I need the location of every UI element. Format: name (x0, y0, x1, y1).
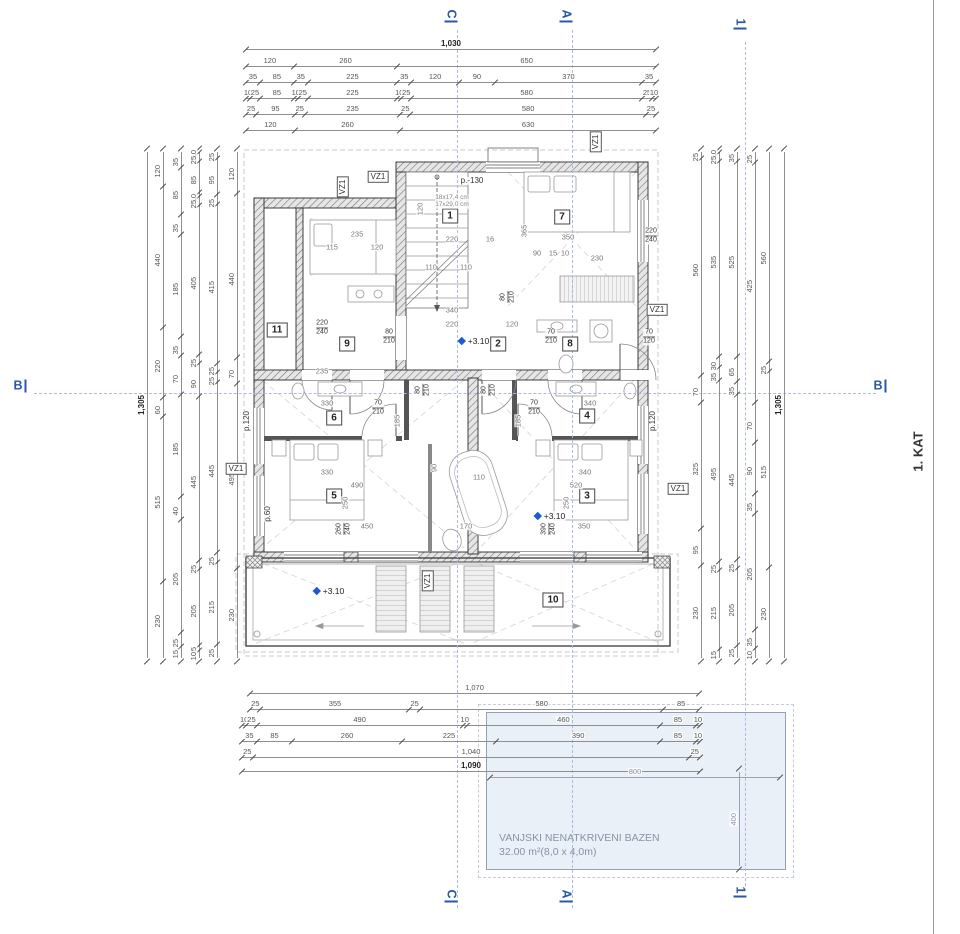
dim-segment: 260 (294, 55, 398, 66)
door-height: 240 (645, 237, 657, 244)
dim-segment: 25 (708, 565, 719, 574)
pool-label-line2: 32.00 m²(8,0 x 4,0m) (499, 846, 596, 858)
dim-label: 25 (298, 89, 308, 97)
dim-label: 85 (172, 190, 180, 200)
dim-segment: 445 (188, 400, 199, 564)
dim-segment: 95 (206, 162, 217, 198)
door-size-label: 80210 (480, 384, 497, 396)
room-number: 3 (579, 489, 595, 504)
dim-segment: 185 (170, 398, 181, 500)
dim-segment: 25 (758, 365, 769, 375)
dim-segment: 35 (242, 730, 257, 741)
dimension-chain: 358535225351209037035 (246, 71, 656, 83)
dim-label: 215 (710, 606, 718, 621)
interior-dim-label: 340 (446, 306, 459, 314)
dim-segment: 205 (726, 572, 737, 648)
dim-label: 10 (693, 732, 703, 740)
dim-segment: 1,030 (246, 38, 656, 49)
dim-segment: 440 (152, 190, 163, 330)
dim-segment: 25 (188, 156, 199, 165)
dim-label: 30 (710, 361, 718, 371)
interior-dim-label: 350 (578, 522, 591, 530)
lounge-chairs (376, 566, 494, 632)
interior-dim-label: 90 (533, 249, 541, 257)
dim-label: 25 (250, 89, 260, 97)
door-height: 210 (509, 291, 516, 303)
dim-label: 25 (250, 700, 260, 708)
stair-spec-label: 17x29,0 cm (435, 202, 469, 209)
dim-label: 10 (649, 89, 659, 97)
dim-label: 25 (190, 564, 198, 574)
interior-dim-label: 250 (341, 497, 349, 510)
door-height: 240 (550, 523, 557, 535)
interior-dim-label: 15 (549, 249, 557, 257)
section-marker: C (445, 889, 458, 902)
dim-segment: 230 (690, 569, 701, 658)
floor-divider-line (933, 0, 934, 934)
dim-segment: 515 (152, 420, 163, 584)
dim-segment: 15 (708, 653, 719, 658)
washer-room8 (590, 320, 612, 342)
dim-segment: 560 (690, 162, 701, 379)
section-marker-label: A (560, 889, 573, 898)
dimension-chain: 120260650 (246, 55, 656, 67)
dim-label: 85 (272, 73, 282, 81)
door-size-label: 390240 (540, 523, 557, 535)
dim-label: 95 (692, 545, 700, 555)
dim-segment: 120 (152, 152, 163, 190)
door-size-label: 220240 (645, 227, 657, 244)
dim-label: 440 (154, 253, 162, 268)
interior-dim-label: 16 (486, 235, 494, 243)
dim-label: 220 (154, 359, 162, 374)
room-number: 4 (579, 409, 595, 424)
dimension-chain: 2595252352558025 (246, 103, 656, 115)
toilet-room8 (559, 355, 573, 373)
door-size-label: 80210 (499, 291, 516, 303)
dim-label: 25 (401, 89, 411, 97)
dim-segment: 230 (152, 585, 163, 658)
dim-segment: 370 (495, 71, 642, 82)
dim-segment: 205 (744, 517, 755, 633)
dim-label: 65 (728, 367, 736, 377)
interior-dim-label: 120 (506, 320, 519, 328)
dimension-chain: 102553530354952521515 (708, 152, 720, 658)
dim-segment: 580 (410, 103, 645, 114)
dim-label: 1,305 (138, 394, 146, 416)
door-height: 210 (528, 409, 540, 416)
dim-segment: 25 (726, 649, 737, 658)
dim-segment: 35 (294, 71, 308, 82)
dim-label: 535 (710, 255, 718, 270)
dim-label: 425 (746, 279, 754, 294)
dim-label: 370 (561, 73, 576, 81)
dim-label: 35 (746, 637, 754, 647)
dim-segment: 325 (690, 406, 701, 532)
dim-segment: 560 (758, 152, 769, 365)
door-width: 80 (480, 384, 489, 396)
dim-segment: 10 (696, 714, 700, 725)
dim-label: 650 (519, 57, 534, 65)
dimension-chain: 35852602253908510 (242, 730, 700, 742)
dim-segment: 70 (170, 359, 181, 398)
dim-segment: 580 (411, 87, 642, 98)
dimension-chain: 12044070495230 (226, 152, 238, 658)
dim-label: 260 (340, 121, 355, 129)
dim-segment: 25 (400, 103, 410, 114)
elevation-value: +3.10 (544, 511, 566, 521)
dim-segment: 25 (744, 152, 755, 166)
door-height: 210 (372, 409, 384, 416)
dim-label: 35 (172, 345, 180, 355)
dim-label: 460 (556, 716, 571, 724)
dim-segment: 85 (257, 730, 293, 741)
dim-label: 580 (521, 105, 536, 113)
ventilation-label: VZ1 (422, 571, 434, 592)
interior-dim-label: 230 (591, 254, 604, 262)
room-number: 11 (267, 323, 288, 338)
dim-segment: 25 (689, 746, 700, 757)
door-width: 390 (540, 523, 549, 535)
dim-label: 25 (190, 358, 198, 368)
dim-segment: 85 (260, 71, 294, 82)
dim-segment: 1,040 (253, 746, 690, 757)
dim-label: 35 (244, 732, 254, 740)
dim-segment: 215 (708, 574, 719, 653)
door-width: 80 (383, 328, 395, 337)
dim-label: 60 (154, 405, 162, 415)
interior-dim-label: 340 (579, 468, 592, 476)
interior-dim-label: 185 (393, 415, 401, 428)
section-marker: 1 (734, 887, 747, 898)
dim-segment: 1,070 (250, 682, 699, 693)
dim-segment: 25 (401, 87, 411, 98)
elevation-value: +3.10 (468, 336, 490, 346)
section-marker: B (873, 380, 886, 393)
interior-dim-label: 330 (321, 468, 334, 476)
dim-segment: 405 (188, 209, 199, 358)
dim-label: 70 (228, 369, 236, 379)
section-marker-label: B (13, 380, 22, 393)
parapet-label: p.120 (243, 411, 251, 431)
dim-segment: 25 (170, 636, 181, 650)
dim-segment: 15 (170, 650, 181, 658)
dimension-chain: 3552565354452520525 (726, 152, 738, 658)
dim-label: 260 (338, 57, 353, 65)
dim-label: 90 (746, 466, 754, 476)
interior-dim-label: 170 (460, 522, 473, 530)
interior-dim-label: 90 (430, 464, 438, 472)
dim-segment: 85 (660, 730, 696, 741)
door-size-label: 70210 (372, 399, 384, 416)
door-width: 70 (545, 328, 557, 337)
dim-segment: 120 (246, 55, 294, 66)
dim-segment: 445 (726, 398, 737, 564)
room-number: 9 (339, 337, 355, 352)
interior-dim-label: 120 (371, 243, 384, 251)
door-width: 220 (645, 227, 657, 236)
dim-label: 95 (208, 175, 216, 185)
dim-segment: 90 (744, 446, 755, 497)
dim-segment: 630 (400, 119, 656, 130)
dimension-chain: 400 (728, 772, 740, 866)
dim-label: 1,030 (440, 40, 462, 48)
ventilation-label: VZ1 (337, 177, 349, 198)
door-width: 220 (316, 319, 328, 328)
dim-label: 580 (519, 89, 534, 97)
dimension-chain: 1,305 (773, 152, 785, 658)
dim-label: 25 (760, 365, 768, 375)
dim-label: 40 (172, 506, 180, 516)
dim-segment: 25 (206, 152, 217, 162)
dim-segment: 355 (260, 698, 409, 709)
parapet-label: p.120 (649, 411, 657, 431)
dim-segment: 25 (188, 564, 199, 573)
dim-label: 560 (760, 251, 768, 266)
dim-label: 10 (460, 716, 470, 724)
dim-label: 560 (692, 263, 700, 278)
dim-label: 35 (746, 502, 754, 512)
dim-label: 10 (693, 716, 703, 724)
dim-segment: 120 (246, 119, 295, 130)
dim-label: 25 (208, 198, 216, 208)
dim-segment: 440 (226, 197, 237, 361)
dim-segment: 230 (758, 571, 769, 659)
dim-segment: 10 (463, 714, 467, 725)
dim-label: 10 (746, 650, 754, 660)
parapet-label: p.-130 (461, 177, 484, 185)
dim-segment: 95 (690, 532, 701, 569)
elevation-marker: +3.10 (314, 586, 345, 596)
dim-label: 445 (208, 464, 216, 479)
dim-segment: 10 (652, 87, 656, 98)
dimension-chain: 251,04025 (242, 746, 700, 758)
dim-label: 120 (263, 57, 278, 65)
dim-label: 415 (208, 280, 216, 295)
dim-segment: 25 (242, 746, 253, 757)
dim-label: 25 (208, 152, 216, 162)
dim-segment: 35 (397, 71, 411, 82)
dim-segment: 25 (726, 563, 737, 572)
dimension-chain: 254257090352053510 (744, 152, 756, 658)
elevation-diamond-icon (457, 337, 465, 345)
dim-segment: 25 (206, 556, 217, 566)
interior-dim-label: 220 (446, 235, 459, 243)
door-height: 210 (424, 384, 431, 396)
dim-label: 25 (190, 155, 198, 165)
dim-segment: 70 (744, 406, 755, 446)
section-line (457, 30, 458, 908)
interior-dim-label: 220 (446, 320, 459, 328)
dimension-chain: 12044022060515230 (152, 152, 164, 658)
dim-label: 95 (270, 105, 280, 113)
dim-segment: 85 (663, 698, 699, 709)
dim-segment: 25 (690, 152, 701, 162)
dim-label: 35 (644, 73, 654, 81)
dim-label: 10 (190, 651, 198, 661)
dim-label: 120 (428, 73, 443, 81)
dim-label: 85 (676, 700, 686, 708)
dim-label: 580 (534, 700, 549, 708)
door-size-label: 70210 (528, 399, 540, 416)
dim-label: 35 (172, 223, 180, 233)
section-marker-label: C (445, 889, 458, 898)
dimension-chain: 56025515230 (758, 152, 770, 658)
elevation-marker: +3.10 (459, 336, 490, 346)
dim-segment: 25 (295, 103, 305, 114)
dim-label: 15 (710, 650, 718, 660)
dimension-chain: 1,305 (136, 152, 148, 658)
dim-segment: 35 (708, 371, 719, 384)
door-width: 70 (372, 399, 384, 408)
interior-dim-label: 10 (561, 249, 569, 257)
door-size-label: 70120 (643, 328, 655, 345)
dim-label: 230 (760, 607, 768, 622)
door-size-label: 260240 (335, 523, 352, 535)
dim-label: 1,040 (461, 748, 482, 756)
dim-label: 800 (628, 768, 643, 776)
interior-dim-label: 330 (321, 399, 334, 407)
dim-segment: 25 (188, 200, 199, 209)
door-size-label: 70210 (545, 328, 557, 345)
elevation-value: +3.10 (323, 586, 345, 596)
dim-label: 25 (710, 155, 718, 165)
door-height: 210 (490, 384, 497, 396)
dim-segment: 225 (308, 87, 398, 98)
dim-segment: 85 (170, 171, 181, 218)
dim-segment: 25 (246, 714, 257, 725)
interior-dim-label: 110 (460, 263, 472, 271)
dim-segment: 120 (411, 71, 459, 82)
dim-label: 25 (692, 152, 700, 162)
dim-segment: 25 (206, 376, 217, 386)
dim-label: 490 (352, 716, 367, 724)
section-marker-label: 1 (734, 887, 747, 894)
interior-dim-label: 340 (584, 399, 597, 407)
dim-label: 525 (728, 255, 736, 270)
pool-label-line1: VANJSKI NENATKRIVENI BAZEN (499, 832, 660, 844)
interior-dim-label: 115 (326, 243, 338, 251)
dim-segment: 515 (758, 375, 769, 571)
elevation-diamond-icon (312, 587, 320, 595)
dim-segment: 1,305 (773, 152, 784, 658)
dim-label: 25 (246, 105, 256, 113)
dim-label: 25 (646, 105, 656, 113)
dim-segment: 10 (188, 654, 199, 658)
dim-label: 445 (190, 475, 198, 490)
interior-dim-label: 350 (562, 233, 575, 241)
dim-label: 25 (710, 564, 718, 574)
dim-label: 630 (521, 121, 536, 129)
room-number: 7 (554, 210, 570, 225)
dim-segment: 10 (696, 730, 700, 741)
ventilation-label: VZ1 (668, 483, 689, 495)
dim-label: 85 (269, 732, 279, 740)
section-marker: C (445, 9, 458, 22)
toilet-room4 (624, 383, 636, 399)
dim-label: 35 (728, 386, 736, 396)
bathtub (444, 445, 512, 540)
dim-segment: 490 (257, 714, 463, 725)
dim-label: 25 (190, 199, 198, 209)
dim-label: 445 (728, 473, 736, 488)
dim-segment: 260 (292, 730, 401, 741)
dim-label: 25 (208, 648, 216, 658)
dim-segment: 220 (152, 331, 163, 401)
dim-label: 185 (172, 442, 180, 457)
dimension-chain: 1,070 (250, 682, 699, 694)
dim-segment: 35 (726, 152, 737, 165)
dim-label: 25 (400, 105, 410, 113)
parapet-label: p.60 (264, 506, 272, 522)
dim-label: 325 (692, 462, 700, 477)
dim-label: 1,070 (464, 684, 485, 692)
dim-segment: 235 (305, 103, 400, 114)
room-number: 6 (326, 411, 342, 426)
dim-segment: 215 (206, 566, 217, 648)
dim-label: 495 (710, 467, 718, 482)
interior-dim-label: 120 (416, 203, 424, 216)
section-marker: A (560, 889, 573, 902)
dim-label: 120 (154, 164, 162, 179)
dim-label: 390 (571, 732, 586, 740)
section-marker: A (560, 9, 573, 22)
dim-label: 25 (246, 716, 256, 724)
dim-label: 90 (190, 379, 198, 389)
dim-label: 225 (345, 89, 360, 97)
section-marker: 1 (734, 19, 747, 30)
dim-label: 235 (345, 105, 360, 113)
dim-label: 205 (728, 603, 736, 618)
door-height: 120 (643, 338, 655, 345)
dim-segment: 30 (708, 360, 719, 371)
dim-label: 15 (172, 649, 180, 659)
dim-segment: 10 (744, 652, 755, 658)
dim-label: 405 (190, 276, 198, 291)
section-marker: B (13, 380, 26, 393)
elevation-diamond-icon (533, 512, 541, 520)
dim-label: 85 (673, 732, 683, 740)
dim-label: 25 (242, 748, 252, 756)
dim-segment: 225 (402, 730, 497, 741)
dim-segment: 85 (660, 714, 696, 725)
dimension-chain: 253552558085 (250, 698, 699, 710)
door-height: 240 (316, 329, 328, 336)
dimension-chain: 102585102522510255802510 (246, 87, 656, 99)
dimension-chain: 25952541525254452521525 (206, 152, 218, 658)
dim-label: 25 (295, 105, 305, 113)
dim-segment: 205 (188, 573, 199, 648)
section-marker-label: B (873, 380, 882, 393)
dim-label: 25 (410, 700, 420, 708)
dim-segment: 25 (206, 198, 217, 208)
dim-label: 400 (730, 812, 738, 827)
ventilation-label: VZ1 (647, 304, 668, 316)
dim-segment: 425 (744, 166, 755, 406)
dim-label: 70 (692, 387, 700, 397)
terrace (246, 556, 670, 646)
dim-segment: 230 (226, 572, 237, 658)
dim-label: 355 (328, 700, 343, 708)
room-number: 2 (490, 337, 506, 352)
door-height: 210 (545, 338, 557, 345)
room-number: 1 (442, 209, 458, 224)
floor-plan-canvas: VANJSKI NENATKRIVENI BAZEN 32.00 m²(8,0 … (0, 0, 960, 934)
ventilation-label: VZ1 (226, 463, 247, 475)
section-marker-label: C (445, 9, 458, 18)
door-width: 80 (414, 384, 423, 396)
room-number: 8 (562, 337, 578, 352)
